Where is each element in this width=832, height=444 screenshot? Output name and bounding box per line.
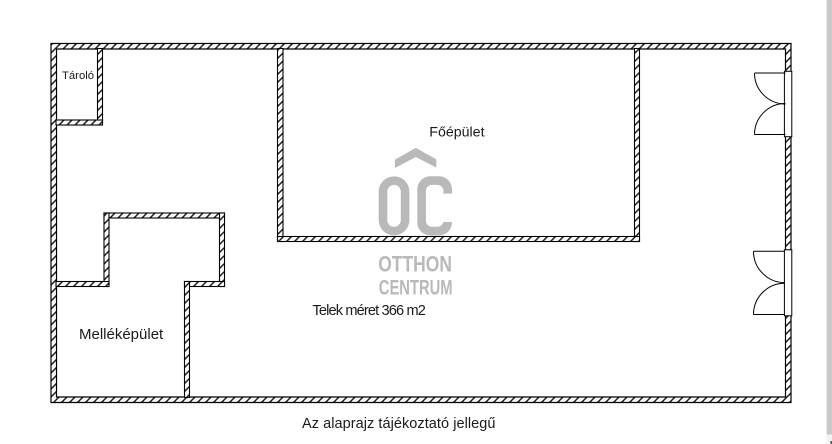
svg-text:OTTHON: OTTHON [378,251,452,276]
svg-text:Az alaprajz tájékoztató jelleg: Az alaprajz tájékoztató jellegű [302,416,496,432]
svg-text:Tároló: Tároló [62,70,94,82]
svg-text:CENTRUM: CENTRUM [379,275,453,299]
svg-text:Melléképület: Melléképület [79,326,164,343]
svg-text:Főépület: Főépület [429,124,484,140]
svg-text:Telek méret 366 m2: Telek méret 366 m2 [312,303,426,319]
